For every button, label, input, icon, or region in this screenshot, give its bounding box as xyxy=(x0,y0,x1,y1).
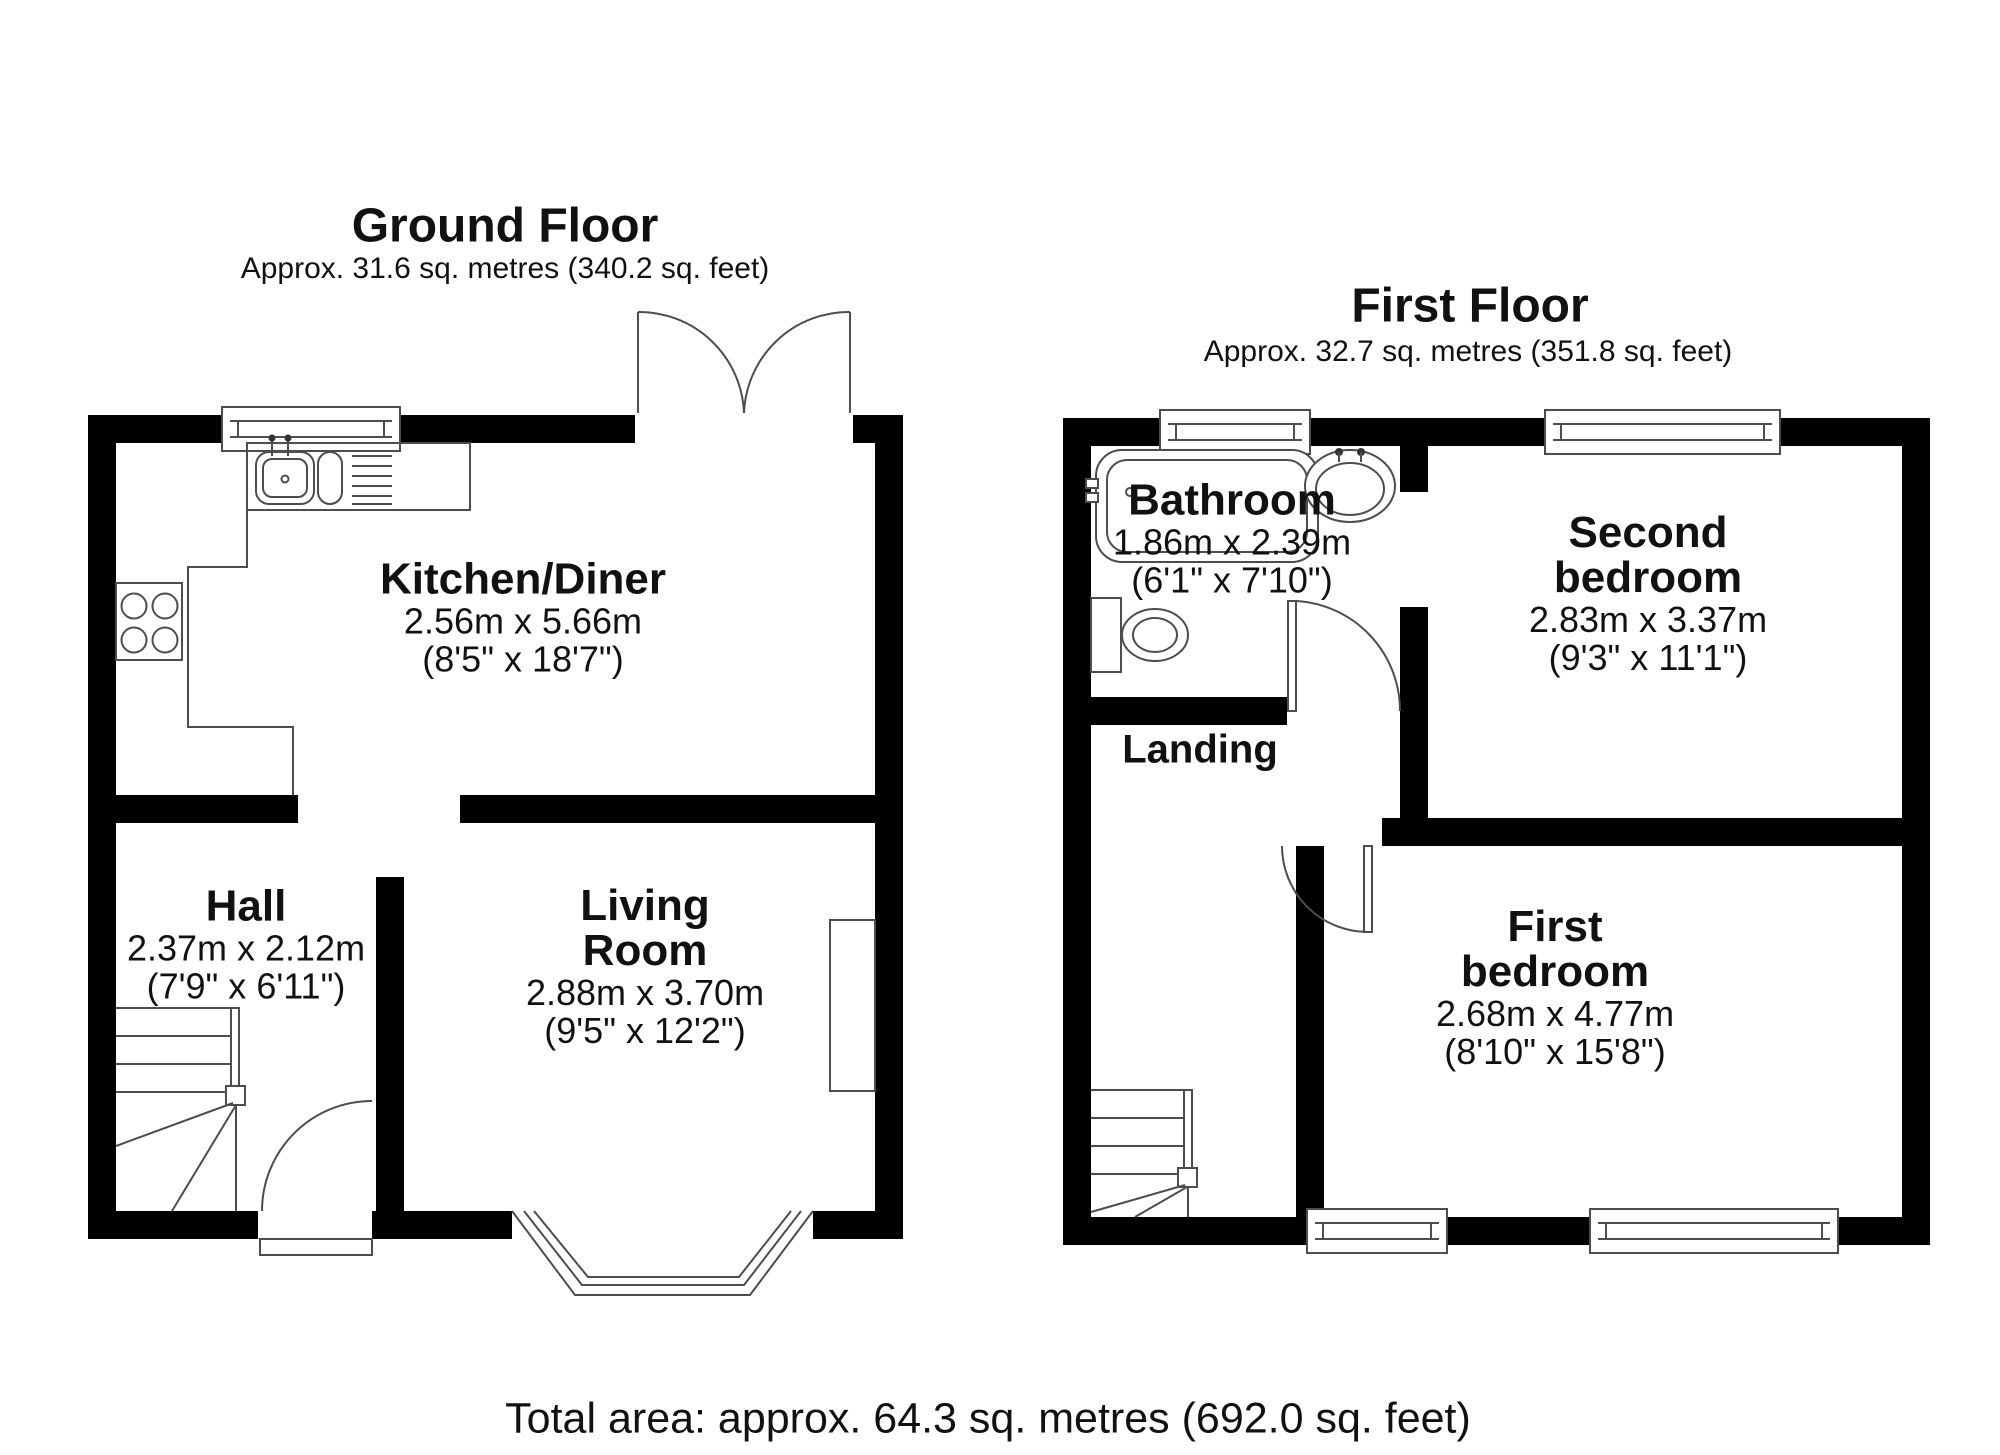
first-bedroom-name: First bedroom xyxy=(1436,905,1674,995)
fireplace-recess xyxy=(830,920,875,1091)
first-floor-title: First Floor xyxy=(1351,279,1588,334)
kitchen-name: Kitchen/Diner xyxy=(380,557,666,602)
living-room-dims-imperial: (9'5" x 12'2") xyxy=(526,1012,764,1050)
first-bedroom-dims-metric: 2.68m x 4.77m xyxy=(1436,995,1674,1033)
second-bedroom-window xyxy=(1545,410,1780,454)
first-floor-area: Approx. 32.7 sq. metres (351.8 sq. feet) xyxy=(1204,335,1733,369)
kitchen-units-outline xyxy=(188,510,293,795)
living-room-label: Living Room 2.88m x 3.70m (9'5" x 12'2") xyxy=(526,884,764,1050)
landing-label: Landing xyxy=(1122,728,1278,773)
kitchen-dims-metric: 2.56m x 5.66m xyxy=(380,602,666,640)
bathroom-label: Bathroom 1.86m x 2.39m (6'1" x 7'10") xyxy=(1113,478,1351,599)
french-doors xyxy=(638,312,850,413)
second-bedroom-dims-imperial: (9'3" x 11'1") xyxy=(1529,639,1767,677)
bathroom-name: Bathroom xyxy=(1113,478,1351,523)
hall-name: Hall xyxy=(127,884,365,929)
bay-window-opening xyxy=(512,1209,813,1241)
bathroom-door xyxy=(1288,601,1400,711)
hall-label: Hall 2.37m x 2.12m (7'9" x 6'11") xyxy=(127,884,365,1005)
living-room-dims-metric: 2.88m x 3.70m xyxy=(526,974,764,1012)
first-bedroom-window xyxy=(1590,1209,1838,1253)
living-room-name: Living Room xyxy=(526,884,764,974)
bathroom-window xyxy=(1160,410,1310,454)
stairwell-window xyxy=(1307,1209,1447,1253)
first-floor-stairs xyxy=(1091,1090,1197,1217)
bathroom-dims-metric: 1.86m x 2.39m xyxy=(1113,523,1351,561)
ground-floor-area: Approx. 31.6 sq. metres (340.2 sq. feet) xyxy=(241,252,770,286)
ground-floor-stairs xyxy=(116,1008,245,1211)
toilet xyxy=(1091,598,1188,672)
bathroom-dims-imperial: (6'1" x 7'10") xyxy=(1113,561,1351,599)
patio-door-opening xyxy=(635,413,853,445)
kitchen-label: Kitchen/Diner 2.56m x 5.66m (8'5" x 18'7… xyxy=(380,557,666,678)
kitchen-window xyxy=(222,407,400,451)
first-bedroom-door xyxy=(1282,846,1372,932)
kitchen-hob xyxy=(116,583,182,660)
second-bedroom-dims-metric: 2.83m x 3.37m xyxy=(1529,601,1767,639)
second-bedroom-name: Second bedroom xyxy=(1529,511,1767,601)
floorplan-drawing xyxy=(0,0,2000,1455)
hall-dims-imperial: (7'9" x 6'11") xyxy=(127,967,365,1005)
total-area-label: Total area: approx. 64.3 sq. metres (692… xyxy=(505,1395,1471,1444)
floorplan-page: Ground Floor Approx. 31.6 sq. metres (34… xyxy=(0,0,2000,1455)
ground-floor-plan xyxy=(88,312,903,1295)
second-bedroom-label: Second bedroom 2.83m x 3.37m (9'3" x 11'… xyxy=(1529,511,1767,677)
ground-floor-walls xyxy=(88,415,903,1239)
kitchen-dims-imperial: (8'5" x 18'7") xyxy=(380,640,666,678)
first-bedroom-label: First bedroom 2.68m x 4.77m (8'10" x 15'… xyxy=(1436,905,1674,1071)
ground-floor-title: Ground Floor xyxy=(352,199,659,254)
first-bedroom-dims-imperial: (8'10" x 15'8") xyxy=(1436,1033,1674,1071)
hall-dims-metric: 2.37m x 2.12m xyxy=(127,929,365,967)
front-door-opening xyxy=(258,1209,372,1241)
